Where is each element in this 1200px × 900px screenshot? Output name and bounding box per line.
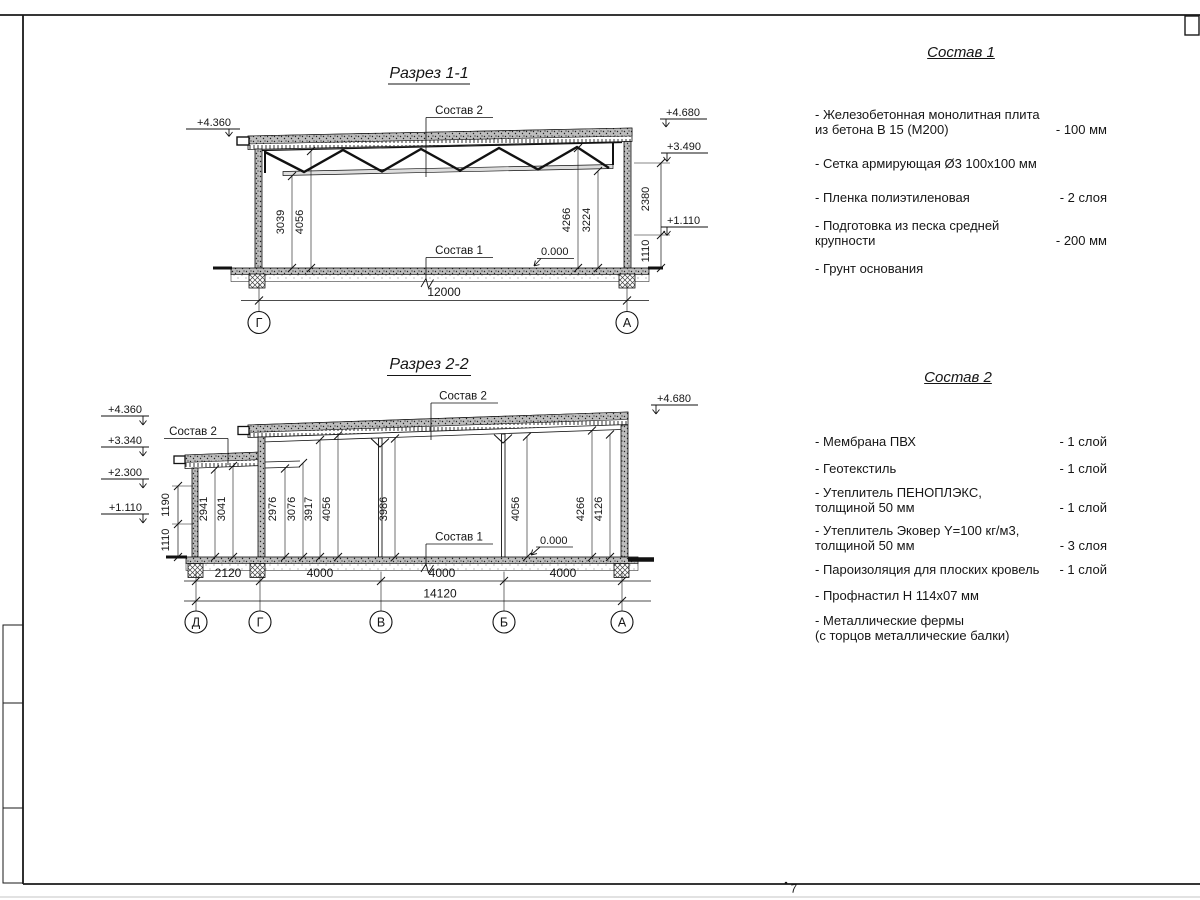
dimension-4056: 4056 [294,147,315,272]
dimension-3041: 3041 [216,462,237,561]
elevation-text: +4.680 [666,107,700,119]
item-value: - 200 мм [1052,233,1107,248]
dimension-3039: 3039 [275,172,296,272]
elevation-mark: +4.360 [186,117,240,137]
item-value: - 1 слой [1055,434,1107,449]
grid-bubble-v: В [370,611,392,633]
grid-bubble-d: Д [185,611,207,633]
list-item: - Железобетонная монолитная плита из бет… [815,108,1107,137]
dim-text: 4266 [575,497,587,521]
elevation-text: +4.680 [657,393,691,405]
grid-letter: В [377,616,385,630]
wall-right [624,142,631,269]
roof-end-cap [238,427,249,435]
wall-a [621,425,628,557]
bottom-dimension: 12000 [241,283,649,312]
dim-text: 4000 [307,566,334,580]
dim-text: 1110 [640,240,652,263]
item-value: - 2 слоя [1056,190,1107,205]
dim-text: 3917 [303,497,315,521]
foundation-block [249,274,265,288]
elevation-text: +4.360 [108,404,142,416]
elevation-mark: +4.680 [660,107,707,127]
dim-text: 4000 [550,566,577,580]
leader-label: Состав 2 [435,105,483,117]
elevation-text: +4.360 [197,117,231,129]
dim-text: 4056 [321,497,333,521]
item-name: - Пленка полиэтиленовая [815,191,970,206]
item-name: - Утеплитель ПЕНОПЛЭКС, толщиной 50 мм [815,486,982,515]
dimension-4266: 4266 [575,427,596,562]
grid-bubble-a: А [616,312,638,334]
item-name: - Утеплитель Эковер Y=100 кг/м3, толщино… [815,524,1019,553]
zero-level-text: 0.000 [541,246,569,258]
zero-level-text: 0.000 [540,535,568,547]
frame-cell [3,703,23,808]
elevation-text: +1.110 [109,502,142,514]
frame-corner-box [1185,16,1199,35]
list-item: - Мембрана ПВХ - 1 слой [815,434,1107,449]
section-2-2: Разрез 2-2 [101,356,698,633]
sostav2-title: Состав 2 [873,369,1043,386]
annex-roof [174,452,300,469]
elevation-text: +2.300 [108,467,142,479]
dimension-4056-right: 4056 [510,433,531,562]
frame-cell [3,808,23,883]
list-item: - Пароизоляция для плоских кровель - 1 с… [815,562,1107,577]
dim-text: 4126 [593,497,605,521]
grid-letter: А [623,316,632,330]
dimension-4126: 4126 [593,431,614,562]
dim-text: 4056 [510,497,522,521]
dim-text: 1110 [160,529,172,552]
item-name: - Железобетонная монолитная плита из бет… [815,108,1040,137]
grid-bubble-g: Г [248,312,270,334]
item-value: - 1 слой [1055,562,1107,577]
dim-text: 4000 [429,566,456,580]
list-item: - Грунт основания [815,262,1107,277]
dimension-3224: 3224 [581,167,602,272]
item-name: - Геотекстиль [815,462,896,477]
grid-letter: Г [257,616,264,630]
item-name: - Грунт основания [815,262,923,277]
elevation-mark: +4.680 [651,393,698,414]
leader-label: Состав 1 [435,532,483,544]
foundation-block [188,564,203,578]
drawing-sheet: 7 Разрез 1-1 [0,0,1200,900]
dim-text: 1190 [160,493,172,517]
column-b [494,434,512,557]
section-2-2-title: Разрез 2-2 [389,356,468,373]
list-item: - Профнастил Н 114х07 мм [815,589,1107,604]
elevation-mark: +4.360 [101,404,149,425]
item-value: - 3 слоя [1056,538,1107,553]
dim-text: 3041 [216,497,228,521]
item-name: - Профнастил Н 114х07 мм [815,589,979,604]
grid-letter: А [618,616,627,630]
dim-text: 14120 [423,587,457,601]
elevation-text: +3.340 [108,435,142,447]
dim-text: 2380 [640,187,652,211]
item-value: - 1 слой [1055,500,1107,515]
list-item: - Утеплитель ПЕНОПЛЭКС, толщиной 50 мм -… [815,486,1107,515]
leader-label: Состав 2 [169,426,217,438]
roof-end-cap [237,137,249,145]
item-value: - 100 мм [1052,122,1107,137]
item-name: - Подготовка из песка средней крупности [815,219,999,248]
elevation-mark: +3.340 [101,435,149,456]
list-item: - Подготовка из песка средней крупности … [815,219,1107,248]
main-roof [238,412,628,442]
dim-text: 3039 [275,210,287,234]
list-item: - Утеплитель Эковер Y=100 кг/м3, толщино… [815,524,1107,553]
wall-left [255,149,262,268]
elevation-mark: +3.490 [661,141,708,162]
left-dim-chain: 1190 1110 [160,482,193,561]
dim-text: 3224 [581,208,593,232]
item-value: - 1 слой [1055,461,1107,476]
item-name: - Пароизоляция для плоских кровель [815,563,1039,578]
frame-cell [3,625,23,703]
list-item: - Сетка армирующая Ø3 100х100 мм [815,157,1107,172]
dim-text: 2120 [215,566,242,580]
dimension-4056-left: 4056 [321,432,342,562]
grid-bubble-b: Б [493,611,515,633]
dim-text: 3076 [286,497,298,521]
foundation-block [614,564,629,578]
dim-text: 12000 [427,285,461,299]
dim-text: 2976 [267,497,279,521]
elevation-mark: +1.110 [661,215,708,236]
grid-bubble-a: А [611,611,633,633]
dim-text: 2941 [198,497,210,521]
grid-letter: Б [500,616,508,630]
leader-label: Состав 1 [435,245,483,257]
grid-bubble-g: Г [249,611,271,633]
dim-text: 4266 [561,208,573,232]
leader-label: Состав 2 [439,391,487,403]
elevation-mark: +2.300 [101,467,149,488]
right-dim-chain: 2380 1110 [634,159,670,272]
foundation-block [250,564,265,578]
wall-g [258,437,265,557]
elevation-mark: +1.110 [101,502,149,523]
sostav1-title: Состав 1 [876,44,1046,61]
item-name: - Мембрана ПВХ [815,435,916,450]
list-item: - Геотекстиль - 1 слой [815,461,1107,476]
zero-level-mark: 0.000 [534,246,574,266]
dim-text: 4056 [294,210,306,234]
roof-band [237,128,632,151]
elevation-text: +3.490 [667,141,701,153]
item-name: - Сетка армирующая Ø3 100х100 мм [815,157,1037,172]
list-item: - Металлические фермы (с торцов металлич… [815,614,1107,643]
list-item: - Пленка полиэтиленовая - 2 слоя [815,190,1107,205]
roof-end-cap [174,456,185,464]
grid-letter: Г [256,316,263,330]
grid-letter: Д [192,616,201,630]
leader-sostav2-main: Состав 2 [431,391,498,441]
dim-text: 3986 [378,497,390,521]
elevation-text: +1.110 [667,215,700,227]
section-1-1: Разрез 1-1 [186,65,708,334]
zero-level-mark: 0.000 [531,535,573,555]
item-name: - Металлические фермы (с торцов металлич… [815,614,1010,643]
section-1-1-title: Разрез 1-1 [389,65,468,82]
